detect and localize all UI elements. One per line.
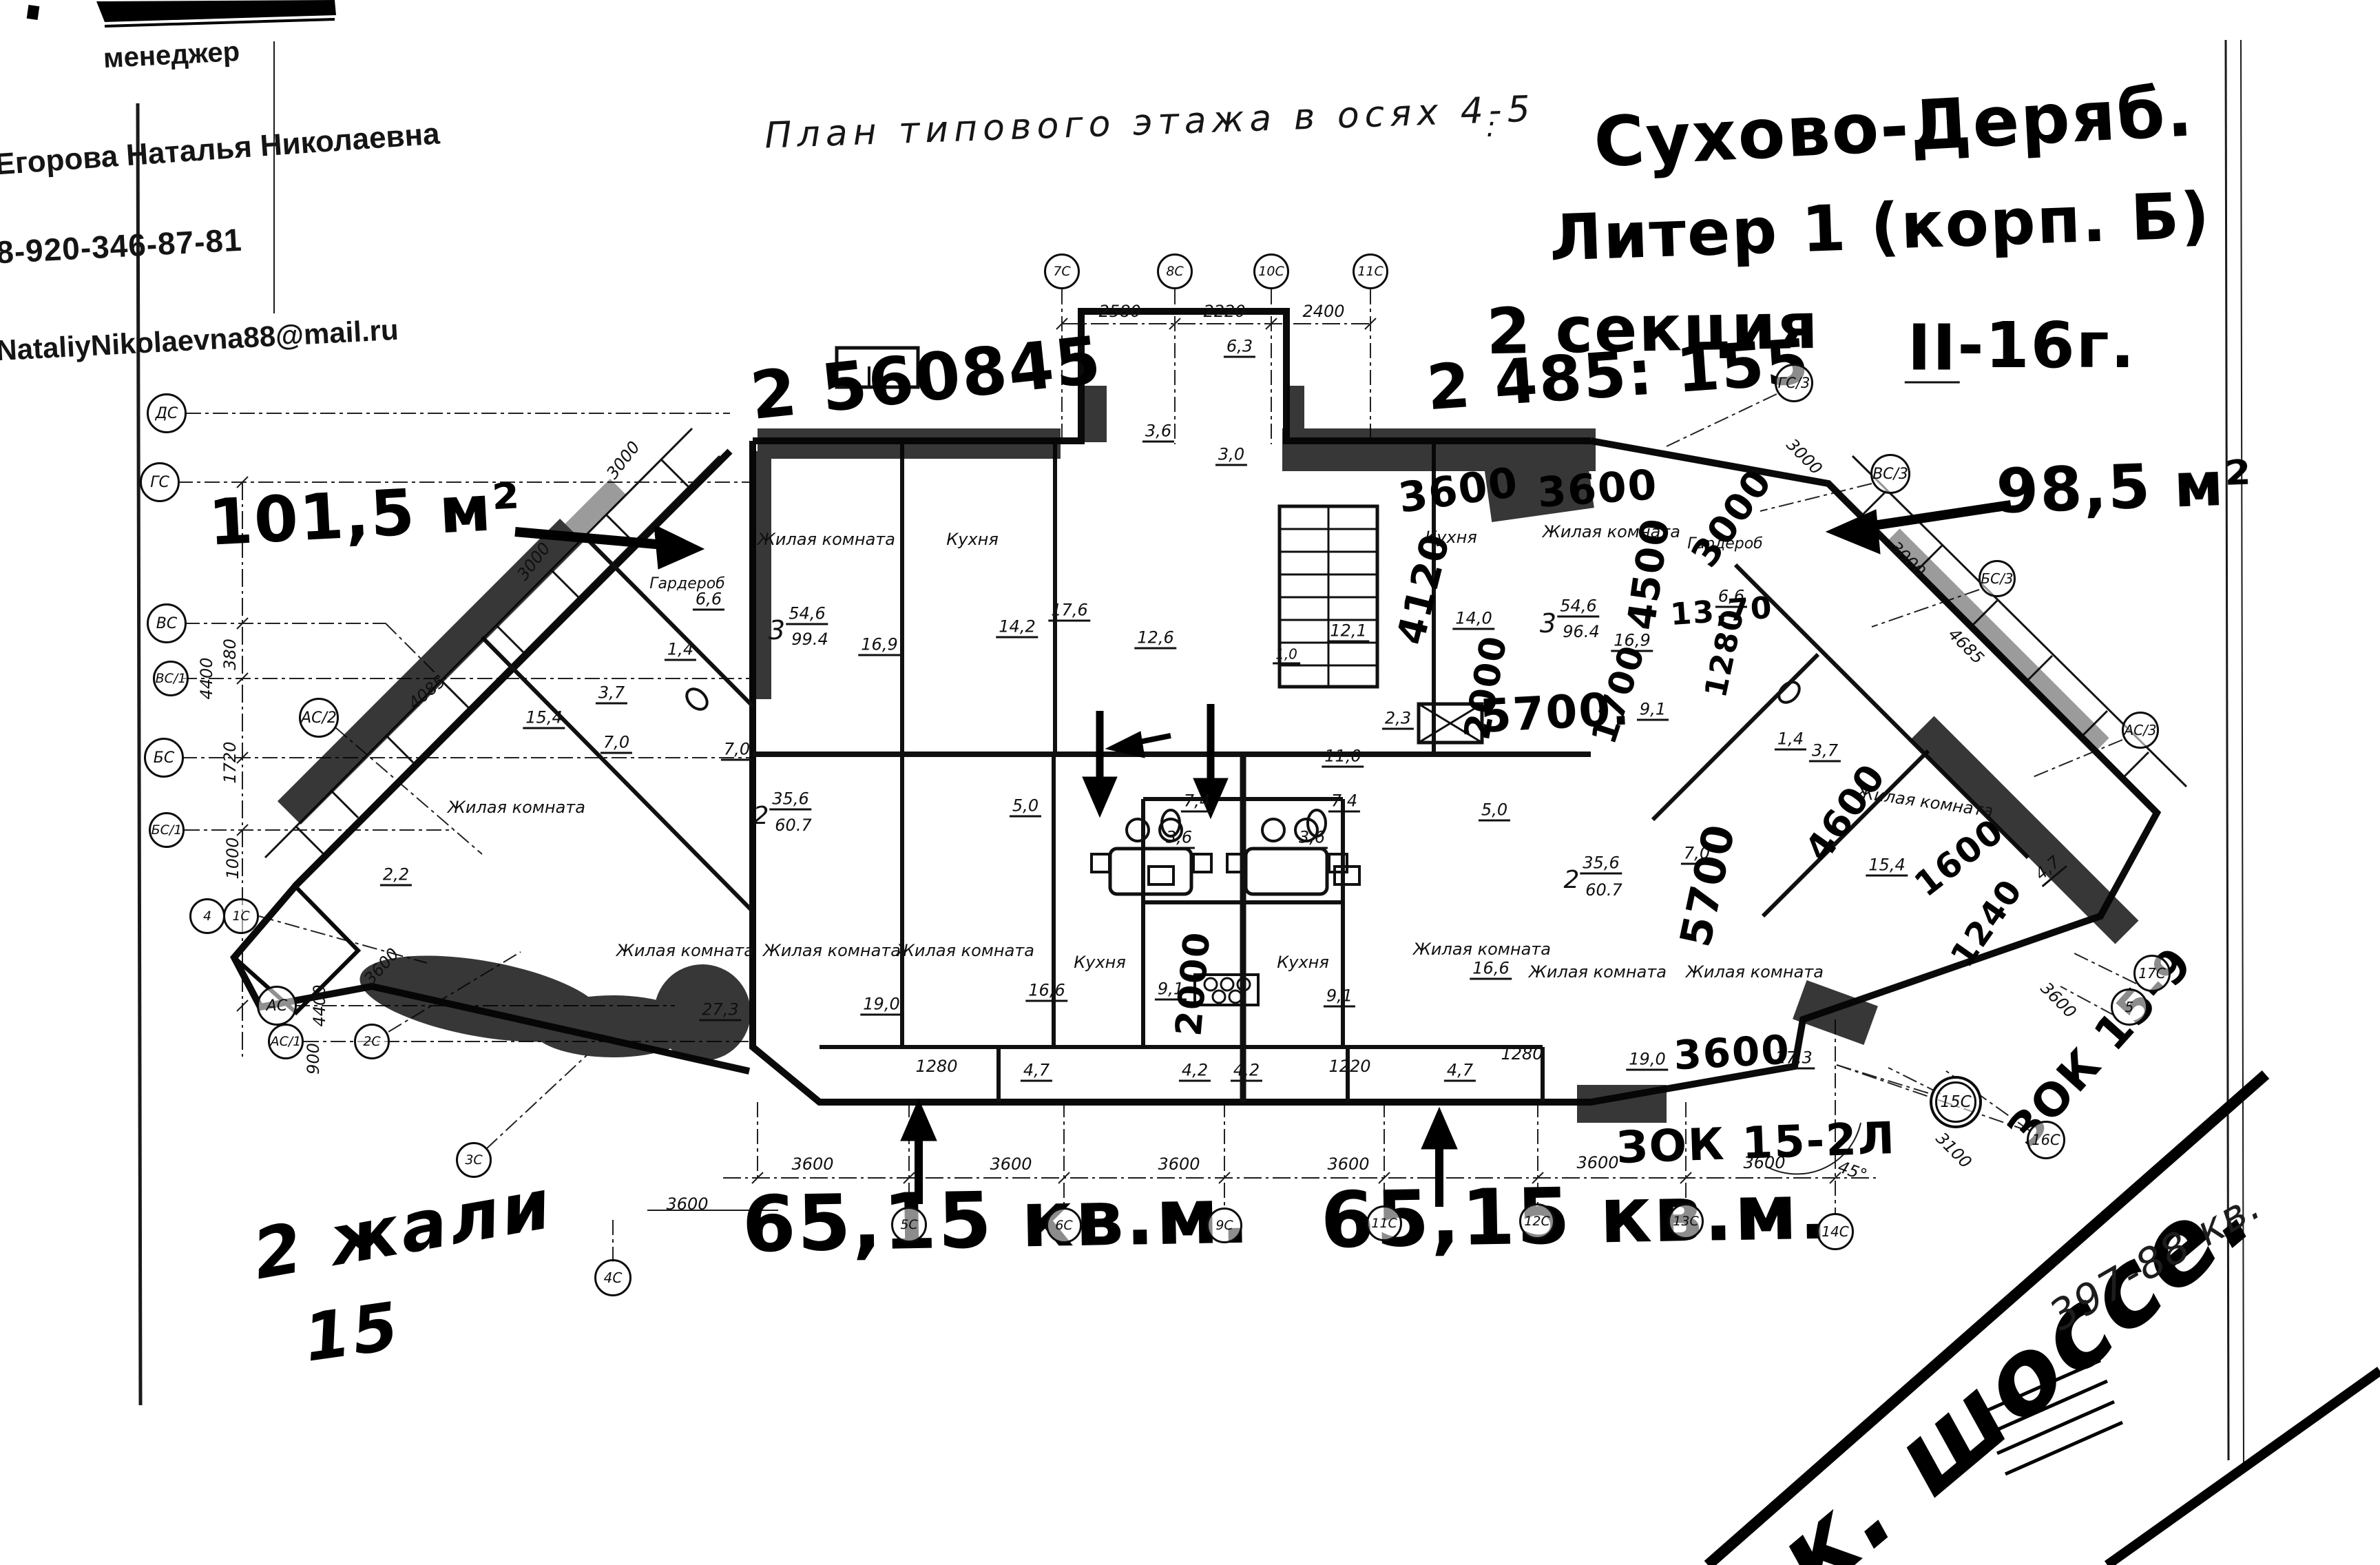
plan-label: 1,0 <box>1273 647 1300 665</box>
plan-label: 1,4 <box>665 641 696 661</box>
handwritten-note: 101,5 м² <box>207 475 523 555</box>
plan-label: 35,6 <box>1580 855 1622 875</box>
plan-label: 4,7 <box>1444 1062 1476 1082</box>
axis-marker: 16С <box>2027 1121 2065 1159</box>
plan-label: Кухня <box>1277 954 1329 971</box>
handwritten-note: 5700. <box>1479 686 1631 739</box>
plan-label: 6,3 <box>1224 338 1255 358</box>
axis-marker: 6С <box>1046 1208 1082 1243</box>
plan-label: 380 <box>222 639 238 670</box>
plan-label: Жилая комната <box>616 942 754 959</box>
plan-label: 2220 <box>1203 303 1245 320</box>
plan-label: 9,1 <box>1637 701 1669 721</box>
plan-label: 12,6 <box>1134 630 1176 650</box>
plan-label: 14,0 <box>1452 610 1494 630</box>
plan-label: Жилая комната <box>1686 964 1824 980</box>
axis-marker: ВС <box>147 603 187 643</box>
plan-label: 4,2 <box>1231 1062 1262 1082</box>
plan-label: 2,3 <box>1382 710 1414 730</box>
axis-marker: АС/2 <box>299 698 339 738</box>
axis-marker: 14С <box>1817 1213 1854 1250</box>
axis-marker: 11С <box>1366 1205 1402 1241</box>
plan-label: 1220 <box>1328 1058 1370 1075</box>
plan-label: 54,6 <box>1557 598 1599 618</box>
plan-label: Кухня <box>1074 954 1126 971</box>
axis-marker: 5 <box>2111 988 2148 1026</box>
plan-label: 4400 <box>198 657 215 699</box>
plan-label: 12,1 <box>1327 623 1369 643</box>
axis-marker: ВС/3 <box>1870 454 1910 494</box>
axis-marker: 4С <box>594 1259 631 1296</box>
plan-label: 6,6 <box>693 591 724 611</box>
axis-marker: 15С <box>1935 1081 1976 1123</box>
axis-marker: 12С <box>1519 1203 1555 1239</box>
plan-label: 7,0 <box>721 741 753 761</box>
handwritten-note: 65,15 кв.м. <box>742 1178 1252 1264</box>
plan-label: 15,4 <box>1866 857 1908 877</box>
plan-label: 3,0 <box>1215 446 1247 466</box>
axis-marker: 5С <box>891 1207 927 1243</box>
axis-marker: 10С <box>1253 253 1289 289</box>
handwritten-note: ЗОК 15-2Л <box>1616 1117 1897 1170</box>
plan-label: Жилая комната <box>1529 964 1667 980</box>
axis-marker: 9С <box>1207 1208 1242 1243</box>
axis-marker: ГС <box>140 462 180 502</box>
plan-label: 3600 <box>1327 1156 1369 1172</box>
plan-label: 3 <box>769 617 785 643</box>
plan-label: 2 <box>753 804 769 829</box>
plan-label: 16,6 <box>1470 960 1512 980</box>
plan-label: 17,6 <box>1048 602 1090 622</box>
plan-label: 3600 <box>1576 1154 1618 1171</box>
plan-label: 1,4 <box>1775 731 1806 751</box>
plan-label: 96.4 <box>1563 623 1599 640</box>
axis-marker: 13С <box>1668 1203 1704 1239</box>
plan-label: 14,2 <box>996 619 1038 639</box>
handwritten-note: 2 секция <box>1486 295 1820 364</box>
plan-label: 4400 <box>311 984 328 1026</box>
axis-marker: 2С <box>354 1024 390 1059</box>
plan-label: 2,2 <box>380 867 412 887</box>
axis-marker: АС/1 <box>268 1024 304 1059</box>
axis-marker: БС/3 <box>1979 560 2016 597</box>
axis-marker: 7С <box>1044 253 1080 289</box>
plan-label: 3,6 <box>1142 423 1174 443</box>
logo-fragment <box>27 0 336 26</box>
plan-label: 1280 <box>1501 1046 1543 1062</box>
plan-label: 2580 <box>1098 303 1140 320</box>
plan-label: 54,6 <box>786 605 828 625</box>
plan-label: 35,6 <box>769 791 811 811</box>
plan-label: 3,7 <box>1809 743 1841 763</box>
plan-label: Жилая комната <box>448 799 585 816</box>
handwritten-note: -16г. <box>1957 314 2136 377</box>
plan-label: 5,0 <box>1479 802 1510 822</box>
scanned-floor-plan-page: менеджер Егорова Наталья Николаевна 8-92… <box>0 0 2380 1565</box>
plan-label: 3600 <box>1158 1156 1200 1172</box>
axis-marker: АС/3 <box>2122 712 2159 749</box>
plan-label: 99.4 <box>791 631 828 647</box>
handwritten-note: 3600 <box>1536 464 1660 514</box>
plan-label: 3,6 <box>1296 829 1328 849</box>
plan-label: 60.7 <box>775 817 811 833</box>
axis-marker: 4 <box>189 898 225 934</box>
plan-label: Жилая комната <box>763 942 901 959</box>
plan-label: 27,3 <box>699 1002 741 1022</box>
plan-label: : <box>1486 114 1495 141</box>
axis-marker: ГС/3 <box>1775 364 1813 402</box>
plan-label: 3,7 <box>596 685 627 705</box>
plan-label: 3600 <box>791 1156 833 1172</box>
plan-label: 3,6 <box>1163 829 1195 849</box>
plan-label: Кухня <box>946 531 999 548</box>
plan-label: Жилая комната <box>1413 941 1551 957</box>
plan-label: 4,2 <box>1179 1062 1211 1082</box>
plan-label: 7,4 <box>1181 793 1213 813</box>
plan-label: 1000 <box>225 837 241 879</box>
plan-label: 900 <box>305 1043 322 1075</box>
axis-marker: ДС <box>147 393 187 433</box>
axis-marker: БС/1 <box>149 812 185 848</box>
plan-label: 3600 <box>666 1196 708 1212</box>
plan-label: 5,0 <box>1010 798 1041 818</box>
plan-label: 3 <box>1540 610 1556 636</box>
plan-label: 2 <box>1564 868 1580 893</box>
plan-label: 60.7 <box>1585 882 1622 898</box>
axis-marker: БС <box>144 738 184 778</box>
plan-label: 4,7 <box>1021 1062 1052 1082</box>
plan-label: 2400 <box>1302 303 1344 320</box>
plan-label: 7,4 <box>1328 793 1360 813</box>
plan-label: 19,0 <box>860 996 902 1016</box>
plan-label: 1280 <box>915 1058 957 1075</box>
axis-marker: 11С <box>1353 253 1388 289</box>
plan-label: 19,0 <box>1626 1051 1668 1071</box>
plan-label: 16,6 <box>1025 982 1067 1002</box>
handwritten-note: 2000 <box>1171 930 1215 1038</box>
plan-label: 16,9 <box>858 636 900 656</box>
plan-label: 15,4 <box>523 709 565 729</box>
handwritten-note: II <box>1905 317 1960 384</box>
plan-label: 7,0 <box>601 734 632 754</box>
plan-label: Жилая комната <box>897 942 1034 959</box>
plan-label: Жилая комната <box>758 531 895 548</box>
plan-label: 9,1 <box>1324 988 1355 1008</box>
axis-marker: 8С <box>1157 253 1193 289</box>
handwritten-note: 15 <box>300 1294 405 1372</box>
axis-marker: 3С <box>456 1142 492 1178</box>
axis-marker: 17С <box>2133 955 2171 992</box>
handwritten-note: 3600 <box>1673 1030 1791 1076</box>
plan-label: 1720 <box>222 741 238 783</box>
axis-marker: 1С <box>223 898 259 934</box>
axis-marker: ВС/1 <box>153 661 189 696</box>
handwritten-note: 98,5 м² <box>1995 453 2253 523</box>
plan-label: 11,0 <box>1322 748 1364 768</box>
axis-marker: АС <box>257 986 297 1026</box>
plan-label: 3600 <box>990 1156 1032 1172</box>
